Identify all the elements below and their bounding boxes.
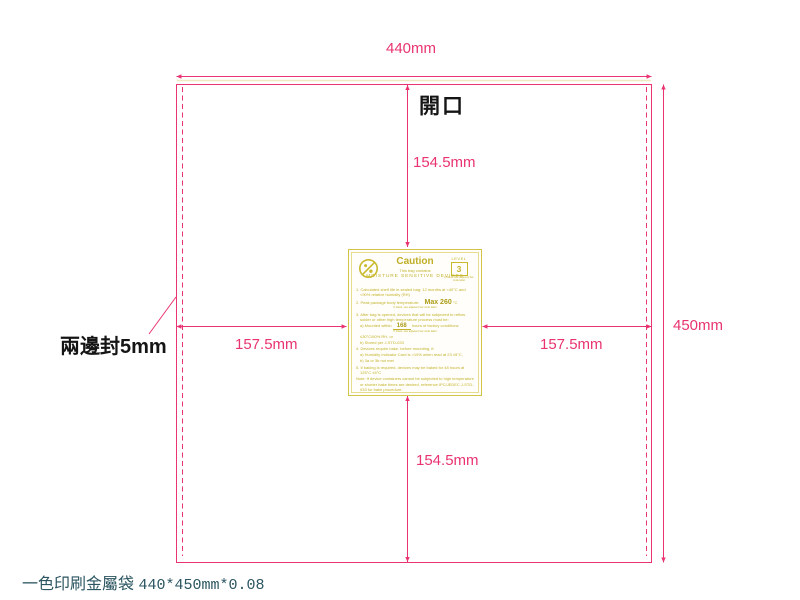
msd-caution-label: Caution This bag contains MOISTURE SENSI… (348, 249, 482, 396)
msd-item3a-suffix: hours of factory conditions (412, 323, 459, 328)
product-title-name: 一色印刷金屬袋 (22, 576, 134, 593)
msd-level-caption: LEVEL (444, 256, 474, 261)
side-seal-label: 兩邊封5mm (60, 330, 167, 359)
msd-no-touch-icon (358, 258, 379, 279)
msd-label-line: b) Stored per J-STD-033 (360, 340, 474, 345)
dim-label-left-half: 157.5mm (235, 336, 298, 353)
msd-hours-value: 168 (393, 323, 411, 330)
dim-label-height: 450mm (673, 317, 723, 334)
msd-label-line: 5. If baking is required, devices may be… (356, 365, 474, 375)
side-seal-leader-line (149, 297, 176, 334)
msd-label-line: 4. Devices require bake, before mounting… (356, 346, 474, 351)
msd-label-note: If blank, see adjacent bar code label (356, 307, 474, 310)
msd-item2-suffix: °C (453, 300, 458, 305)
msd-level-note: If blank, see adjacent bar code label (444, 277, 474, 283)
dim-label-width: 440mm (386, 40, 436, 57)
msd-item3a-prefix: a) Mounted within (360, 323, 392, 328)
msd-label-line: a) Humidity Indicator Card is >10% when … (360, 352, 474, 357)
msd-item2-prefix: 2. Peak package body temperature: (356, 300, 419, 305)
msd-label-line: 1. Calculated shelf life in sealed bag: … (356, 287, 474, 297)
msd-label-line: b) 3a or 3b not met (360, 358, 474, 363)
msd-label-body: 1. Calculated shelf life in sealed bag: … (356, 287, 474, 394)
product-title-spec: 440*450mm*0.08 (138, 577, 264, 594)
msd-level-value: 3 (451, 262, 468, 276)
msd-label-line: 3. After bag is opened, devices that wil… (356, 312, 474, 322)
product-title: 一色印刷金屬袋 440*450mm*0.08 (22, 570, 265, 594)
msd-label-inner: Caution This bag contains MOISTURE SENSI… (351, 252, 479, 393)
msd-label-note-paragraph: Note: If device containers cannot be sub… (356, 376, 474, 392)
msd-label-line: ≤30°C/60% RH, or (360, 334, 474, 339)
bag-dieline-drawing: 440mm 450mm 154.5mm 154.5mm 157.5mm 157.… (0, 0, 800, 600)
dim-label-bottom-half: 154.5mm (416, 452, 479, 469)
dim-label-top-half: 154.5mm (413, 154, 476, 171)
msd-level-block: LEVEL 3 If blank, see adjacent bar code … (444, 256, 474, 283)
opening-label: 開口 (419, 90, 465, 120)
dim-label-right-half: 157.5mm (540, 336, 603, 353)
msd-label-header: Caution This bag contains MOISTURE SENSI… (356, 256, 474, 285)
